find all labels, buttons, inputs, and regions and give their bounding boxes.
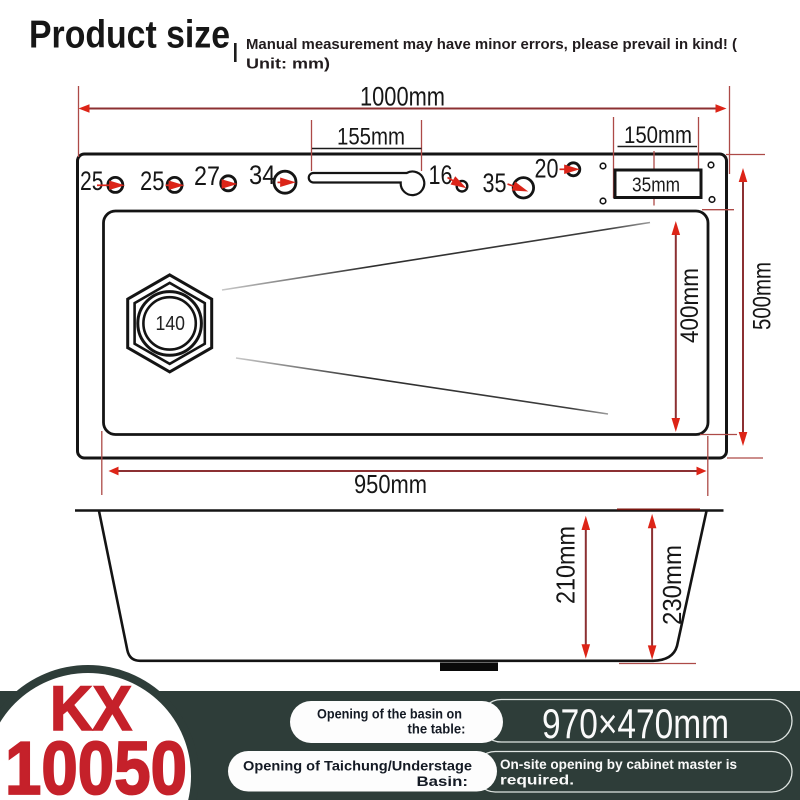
svg-text:150mm: 150mm	[624, 122, 692, 149]
svg-text:35: 35	[483, 168, 507, 198]
svg-text:155mm: 155mm	[337, 124, 405, 151]
svg-text:230mm: 230mm	[657, 545, 687, 625]
svg-text:required.: required.	[500, 772, 574, 788]
svg-text:Basin:: Basin:	[417, 774, 469, 789]
svg-text:20: 20	[535, 154, 559, 184]
svg-text:27: 27	[194, 161, 220, 191]
svg-text:Opening of Taichung/Understage: Opening of Taichung/Understage	[243, 759, 473, 774]
svg-text:the table:: the table:	[408, 722, 466, 737]
svg-text:500mm: 500mm	[749, 262, 777, 330]
svg-text:25: 25	[140, 166, 165, 196]
svg-text:16: 16	[429, 160, 453, 190]
svg-text:10050: 10050	[5, 726, 187, 800]
svg-text:34: 34	[249, 160, 276, 190]
svg-text:35mm: 35mm	[632, 175, 680, 197]
svg-text:950mm: 950mm	[354, 469, 427, 499]
svg-text:210mm: 210mm	[551, 526, 581, 604]
svg-text:Manual measurement may have mi: Manual measurement may have minor errors…	[246, 36, 738, 53]
svg-text:1000mm: 1000mm	[360, 82, 445, 112]
svg-text:400mm: 400mm	[676, 268, 704, 343]
svg-text:970×470mm: 970×470mm	[542, 700, 729, 747]
svg-text:Opening of the basin on: Opening of the basin on	[317, 707, 462, 722]
svg-text:On-site opening by cabinet mas: On-site opening by cabinet master is	[500, 756, 737, 772]
svg-text:Product size: Product size	[29, 14, 230, 57]
svg-text:Unit: mm): Unit: mm)	[246, 56, 330, 73]
svg-text:140: 140	[156, 312, 186, 335]
svg-text:25: 25	[80, 166, 104, 196]
